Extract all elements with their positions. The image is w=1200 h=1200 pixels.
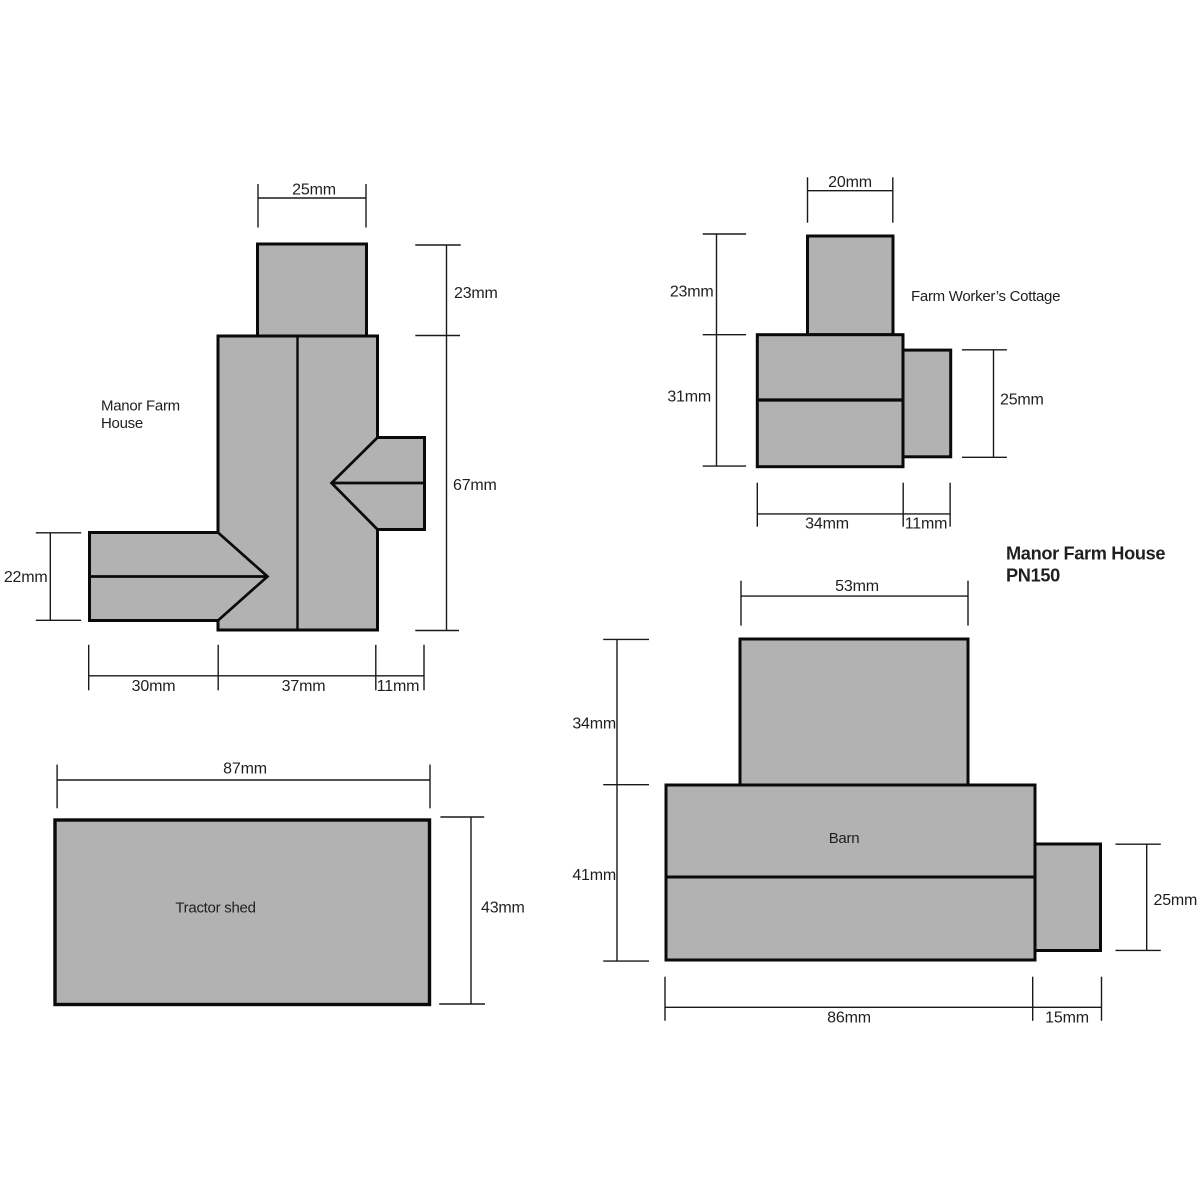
svg-text:Tractor shed: Tractor shed [175, 900, 255, 917]
svg-text:53mm: 53mm [835, 578, 879, 595]
svg-text:67mm: 67mm [453, 477, 497, 494]
svg-text:86mm: 86mm [827, 1010, 871, 1027]
svg-text:11mm: 11mm [377, 678, 419, 695]
svg-text:23mm: 23mm [454, 285, 498, 302]
svg-text:30mm: 30mm [132, 678, 176, 695]
svg-text:23mm: 23mm [670, 284, 714, 301]
svg-text:25mm: 25mm [1000, 392, 1044, 409]
svg-text:34mm: 34mm [805, 516, 849, 533]
svg-text:20mm: 20mm [828, 174, 872, 191]
svg-text:PN150: PN150 [1006, 566, 1060, 586]
svg-text:Manor Farm: Manor Farm [101, 398, 180, 415]
svg-text:15mm: 15mm [1045, 1010, 1089, 1027]
svg-text:37mm: 37mm [282, 678, 326, 695]
svg-text:Farm Worker’s Cottage: Farm Worker’s Cottage [911, 288, 1060, 305]
svg-text:25mm: 25mm [1154, 892, 1198, 909]
svg-text:34mm: 34mm [572, 716, 616, 733]
svg-text:87mm: 87mm [223, 761, 267, 778]
svg-text:House: House [101, 415, 143, 432]
svg-text:Manor Farm House: Manor Farm House [1006, 544, 1165, 564]
svg-text:25mm: 25mm [292, 182, 336, 199]
svg-text:43mm: 43mm [481, 900, 525, 917]
svg-text:22mm: 22mm [4, 569, 48, 586]
svg-text:11mm: 11mm [905, 516, 947, 533]
svg-text:31mm: 31mm [667, 389, 711, 406]
svg-text:41mm: 41mm [572, 867, 616, 884]
svg-text:Barn: Barn [829, 830, 860, 847]
